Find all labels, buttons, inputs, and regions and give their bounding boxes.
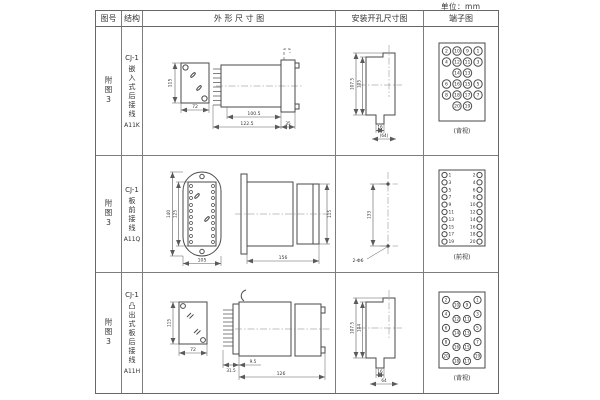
pin-label: 14 [469,217,475,223]
pin-label: 11 [448,210,454,216]
pin-label: 20 [454,104,460,110]
outline-drawing-row3: 115 72 31.5 [143,274,335,393]
pin-label: 14 [454,71,460,77]
pin-label: 7 [476,93,479,99]
pin-label: 2 [445,49,448,55]
pin-label: 8 [472,195,475,201]
pin-label: 19 [464,104,470,110]
pin-label: 4 [472,180,475,186]
dim-side-d1-row3: 31.5 [226,368,236,373]
outline-cell-row2: 140 125 105 156 [143,156,336,273]
pin-label: 17 [464,358,470,363]
pin-label: 4 [445,60,448,66]
outline-cell-row1: 115 72 100.5 122.5 [143,27,336,156]
view-label-row2: (前视) [453,253,470,261]
terminal-cell-row2: 1 3 5 7 9 11 13 15 17 19 2 4 6 8 10 12 1 [424,156,498,273]
dim-front-width-row2: 105 [198,258,207,264]
manual-page: 单位：mm 图号 结构 外 形 尺 寸 图 安装开孔尺寸图 端子图 附图3 CJ… [0,0,600,400]
pin-label: 5 [448,187,451,193]
dim-install-slot-row3: 16 [377,369,383,374]
view-label-row3: (背视) [453,374,470,382]
dim-side-d2-row1: 122.5 [240,121,253,127]
dim-side-d2-row3: 9.5 [250,359,257,364]
structure-cell-row2: CJ-1 板前接线 A11Q [122,156,143,273]
dim-front-height-row3: 115 [167,318,172,326]
pin-label: 6 [445,82,448,88]
structure-code-row2: A11Q [124,236,140,243]
structure-row1: CJ-1 嵌入式后接线 A11K [124,54,140,129]
pin-label: 17 [464,93,470,99]
dim-install-base-row3: 64 [381,378,387,383]
dim-install-slot-row1: 16 [377,125,383,130]
outline-cell-row3: 115 72 31.5 [143,273,336,393]
structure-model-row1: CJ-1 [125,54,139,62]
pin-label: 10 [453,302,459,307]
pin-label: 13 [448,217,454,223]
pin-label: 13 [464,330,470,335]
terminal-pins-row2: 1 3 5 7 9 11 13 15 17 19 2 4 6 8 10 12 1 [441,172,481,245]
front-view: 115 72 [168,63,210,113]
fig-no-cell-row3: 附图3 [96,273,122,393]
pin-label: 6 [472,187,475,193]
pin-label: 16 [469,224,475,230]
pin-label: 19 [448,239,454,245]
dim-front-width-row1: 72 [192,104,198,110]
install-cell-row2: 133 2-Φ6 [336,156,424,273]
structure-cell-row1: CJ-1 嵌入式后接线 A11K [122,27,143,156]
front-view: 140 125 105 [166,172,221,266]
pin-label: 8 [444,339,447,344]
fig-no-row3: 附图3 [103,318,114,348]
fig-no-row2: 附图3 [103,199,114,229]
dim-install-houter-row3: 107.5 [350,321,355,333]
pin-label: 17 [448,232,454,238]
terminal-drawing-row2: 1 3 5 7 9 11 13 15 17 19 2 4 6 8 10 12 1 [425,156,498,272]
terminal-drawing-row3: 2 4 6 8 20 10 12 14 16 18 9 11 13 15 17 … [425,274,498,393]
install-drawing-row2: 133 2-Φ6 [336,156,423,272]
pin-label: 20 [469,239,475,245]
install-drawing-row3: 107.5 104 16 64 [336,274,423,393]
structure-code-row1: A11K [124,122,140,129]
dim-install-h-row2: 133 [367,211,372,219]
terminal-cell-row3: 2 4 6 8 20 10 12 14 16 18 9 11 13 15 17 … [424,273,498,393]
header-structure: 结构 [122,11,143,27]
pin-label: 10 [469,202,475,208]
dim-front-hinner-row2: 125 [173,210,178,218]
pin-label: 16 [454,82,460,88]
pin-label: 3 [476,311,479,316]
outline-drawing-row1: 115 72 100.5 122.5 [143,27,335,155]
pin-label: 9 [465,302,468,307]
structure-cell-row3: CJ-1 凸出式板后接线 A11H [122,273,143,393]
pin-label: 18 [454,93,460,99]
header-fig-no: 图号 [96,11,122,27]
pin-label: 6 [444,325,447,330]
dim-side-height-row2: 115 [327,210,332,218]
pin-label: 12 [454,60,460,66]
dim-install-base-row1: (64) [380,133,389,138]
side-view: 100.5 122.5 35 [213,49,303,129]
structure-desc-row1: 嵌入式后接线 [127,65,137,119]
pin-label: 2 [472,173,475,179]
pin-label: 12 [469,210,475,216]
pin-label: 7 [448,195,451,201]
structure-code-row3: A11H [124,368,140,375]
fig-no-cell-row2: 附图3 [96,156,122,273]
dim-install-hinner-row3: 104 [357,323,362,331]
pin-label: 9 [448,202,451,208]
structure-desc-row3: 凸出式板后接线 [127,302,137,365]
pin-label: 1 [448,173,451,179]
pin-label: 15 [464,344,470,349]
fig-no-row1: 附图3 [103,76,114,106]
pin-label: 19 [474,353,480,358]
pin-label: 16 [453,344,459,349]
terminal-drawing-row1: 2 10 9 1 4 12 11 3 14 13 6 16 15 5 8 18 [425,27,498,155]
front-view: 115 72 [167,302,208,356]
pin-label: 20 [443,353,449,358]
header-outline: 外 形 尺 寸 图 [143,11,336,27]
pin-label: 10 [454,49,460,55]
pin-label: 15 [464,82,470,88]
structure-desc-row2: 板前接线 [127,197,137,233]
pin-label: 9 [466,49,469,55]
dim-install-houter-row1: 107.5 [350,78,355,90]
install-cell-row3: 107.5 104 16 64 [336,273,424,393]
dim-front-width-row3: 72 [190,347,196,353]
dim-side-d3-row3: 126 [277,371,286,377]
pin-label: 15 [448,224,454,230]
terminal-pins-row3: 2 4 6 8 20 10 12 14 16 18 9 11 13 15 17 … [442,296,481,364]
view-label-row1: (背视) [453,127,470,135]
pin-label: 3 [448,180,451,186]
dim-front-houter-row2: 140 [166,210,171,218]
pin-label: 2 [444,297,447,302]
structure-row3: CJ-1 凸出式板后接线 A11H [124,291,140,375]
dim-side-d3-row1: 35 [285,121,291,126]
header-install: 安装开孔尺寸图 [336,11,424,27]
terminal-pins-row1: 2 10 9 1 4 12 11 3 14 13 6 16 15 5 8 18 [442,47,482,110]
side-view: 31.5 9.5 126 [223,290,330,380]
pin-label: 13 [464,71,470,77]
pin-label: 11 [464,316,470,321]
pin-label: 5 [476,325,479,330]
pin-label: 8 [445,93,448,99]
pin-label: 11 [464,60,470,66]
structure-row2: CJ-1 板前接线 A11Q [124,186,140,243]
pin-label: 3 [476,60,479,66]
terminal-cell-row1: 2 10 9 1 4 12 11 3 14 13 6 16 15 5 8 18 [424,27,498,156]
pin-label: 18 [469,232,475,238]
install-cell-row1: 107.5 105 16 (64) [336,27,424,156]
structure-model-row3: CJ-1 [125,291,139,299]
install-drawing-row1: 107.5 105 16 (64) [336,27,423,155]
pin-label: 12 [453,316,459,321]
pin-label: 1 [476,49,479,55]
spec-table: 图号 结构 外 形 尺 寸 图 安装开孔尺寸图 端子图 附图3 CJ-1 嵌入式… [95,10,499,394]
pin-label: 1 [476,297,479,302]
pin-label: 18 [453,358,459,363]
pin-label: 4 [444,311,447,316]
dim-install-holes-row2: 2-Φ6 [352,258,363,264]
pin-label: 7 [476,339,479,344]
outline-drawing-row2: 140 125 105 156 [143,156,335,272]
pin-label: 14 [453,330,459,335]
header-terminal: 端子图 [424,11,498,27]
dim-install-hinner-row1: 105 [357,80,362,88]
pin-label: 5 [476,82,479,88]
dim-front-height-row1: 115 [168,79,174,88]
structure-model-row2: CJ-1 [125,186,139,194]
side-view: 156 115 [235,174,332,264]
dim-side-d1-row1: 100.5 [247,111,260,117]
fig-no-cell-row1: 附图3 [96,27,122,156]
dim-side-len-row2: 156 [279,255,288,261]
